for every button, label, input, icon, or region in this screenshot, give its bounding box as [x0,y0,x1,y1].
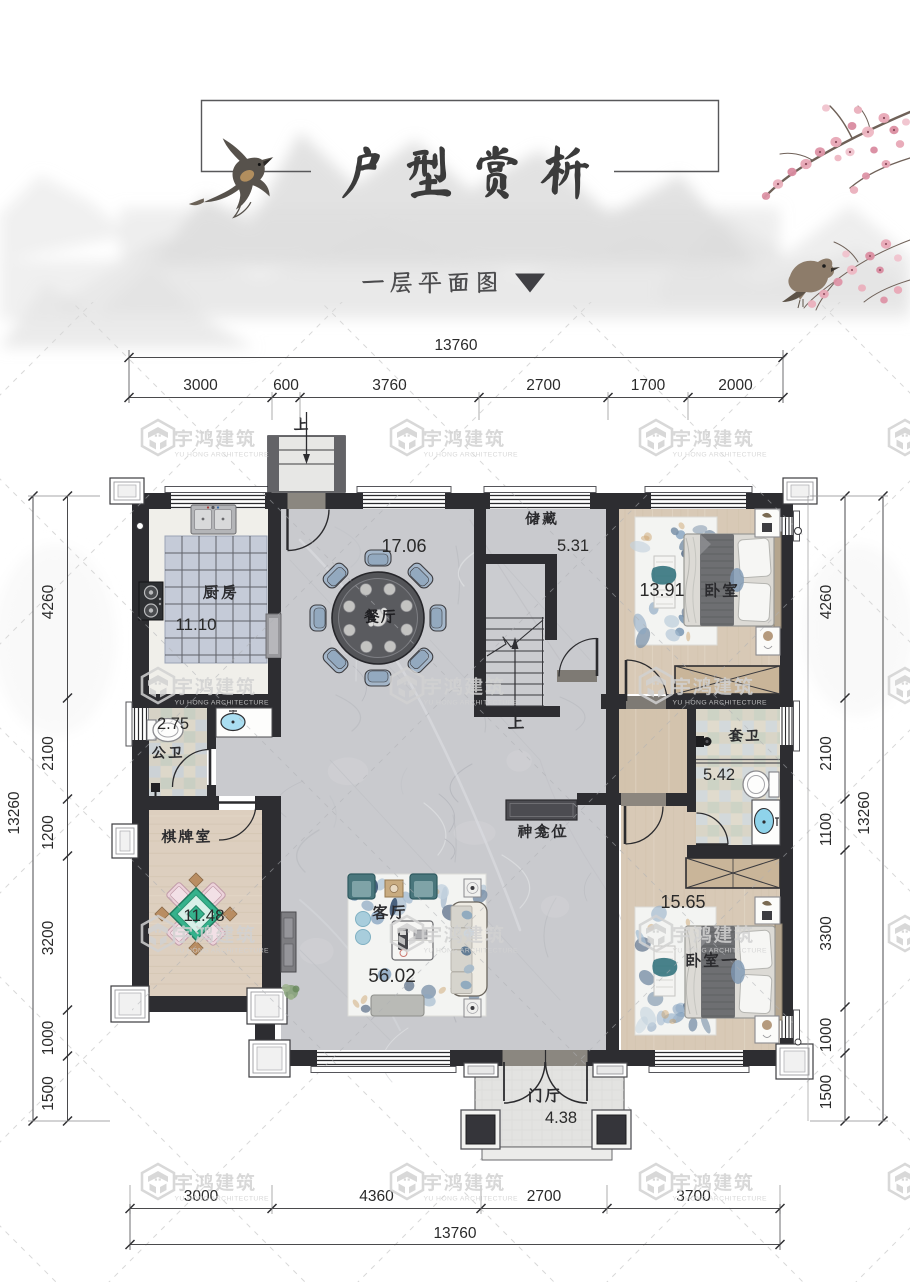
svg-text:3000: 3000 [183,377,218,394]
svg-text:5.42: 5.42 [703,766,735,784]
svg-text:2700: 2700 [526,377,561,394]
svg-text:1500: 1500 [40,1076,57,1111]
svg-text:2100: 2100 [818,736,835,771]
svg-text:4360: 4360 [359,1188,394,1205]
svg-text:17.06: 17.06 [381,536,426,556]
svg-text:13760: 13760 [434,337,477,354]
svg-text:4260: 4260 [818,584,835,619]
svg-text:1100: 1100 [818,812,835,846]
svg-text:2.75: 2.75 [157,715,189,733]
svg-text:13.91: 13.91 [639,580,684,600]
svg-text:3760: 3760 [372,377,407,394]
svg-text:3300: 3300 [818,916,835,951]
svg-text:1000: 1000 [40,1020,57,1055]
svg-text:15.65: 15.65 [660,892,705,912]
svg-text:11.48: 11.48 [183,906,224,925]
svg-text:5.31: 5.31 [557,537,589,555]
svg-text:13260: 13260 [856,791,873,834]
svg-text:56.02: 56.02 [368,966,416,987]
svg-text:4.38: 4.38 [545,1109,577,1127]
svg-text:1700: 1700 [631,377,666,394]
svg-text:2700: 2700 [527,1188,562,1205]
svg-text:13260: 13260 [6,791,23,834]
svg-text:600: 600 [273,377,299,394]
svg-text:11.10: 11.10 [175,615,216,634]
svg-text:2000: 2000 [718,377,753,394]
svg-text:1500: 1500 [818,1074,835,1109]
svg-text:13760: 13760 [433,1225,476,1242]
svg-text:2100: 2100 [40,736,57,771]
svg-text:1000: 1000 [818,1017,835,1052]
svg-text:4260: 4260 [40,584,57,619]
svg-text:1200: 1200 [40,815,57,850]
svg-text:3200: 3200 [40,920,57,955]
